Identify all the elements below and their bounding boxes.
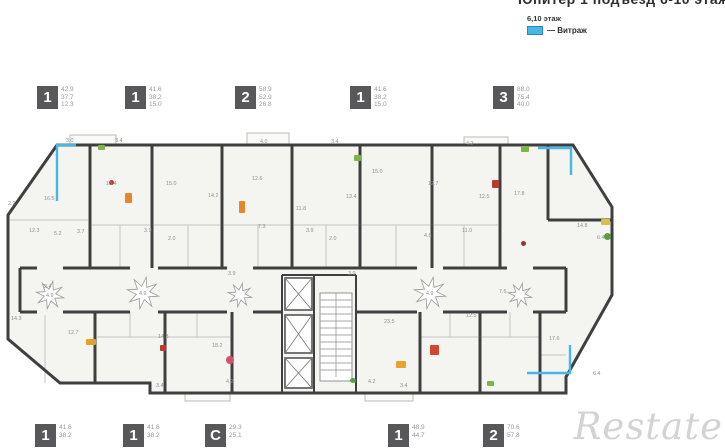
furniture-item [86, 339, 96, 345]
unit-areas: 42.9 37.7 12.3 [61, 86, 74, 109]
unit-area: 41.6 [147, 424, 160, 432]
room-area-label: 3.9 [306, 228, 314, 234]
unit-label-top-2: 1 41.6 38.2 15.0 [125, 86, 162, 109]
room-area-label: 3.0 [66, 138, 74, 144]
room-area-label: 4.9 [46, 293, 54, 299]
room-area-label: 12.7 [68, 330, 79, 336]
room-area-label: 11.0 [462, 228, 472, 234]
unit-area: 38.2 [374, 94, 387, 102]
unit-area: 41.6 [59, 424, 72, 432]
unit-area: 52.9 [259, 94, 272, 102]
furniture-item [125, 193, 132, 203]
room-area-label: 3.4 [331, 139, 339, 145]
room-area-label: 23.5 [384, 319, 395, 325]
room-area-label: 4.2 [226, 379, 234, 385]
room-area-label: 4.6 [424, 233, 432, 239]
room-area-label: 4.2 [368, 379, 376, 385]
staircase [320, 293, 352, 381]
room-area-label: 7.5 [499, 289, 507, 295]
unit-area: 15.0 [149, 101, 162, 109]
unit-areas: 41.6 38.2 [59, 424, 72, 439]
furniture-item [350, 378, 356, 383]
unit-area: 38.2 [149, 94, 162, 102]
unit-label-top-5: 3 88.0 75.4 40.0 [493, 86, 530, 109]
room-area-label: 12.6 [252, 176, 263, 182]
room-area-label: 17.6 [549, 336, 560, 342]
unit-areas: 70.6 57.8 [507, 424, 520, 439]
room-area-label: 3.9 [144, 228, 152, 234]
unit-label-top-1: 1 42.9 37.7 12.3 [37, 86, 74, 109]
unit-type-badge: 3 [493, 86, 514, 109]
room-area-label: 3.9 [228, 271, 236, 277]
room-area-label: 6.4 [597, 235, 605, 241]
room-area-label: 2.2 [8, 201, 16, 207]
page-title: Юпитер 1 подъезд 6-10 этаж [518, 0, 725, 7]
room-area-label: 16.5 [44, 196, 55, 202]
room-area-label: 6.4 [593, 371, 601, 377]
room-area-label: 15.0 [372, 169, 383, 175]
furniture-item [239, 201, 245, 213]
unit-area: 38.2 [147, 432, 160, 440]
room-area-label: 3.7 [77, 229, 85, 235]
unit-type-badge: 1 [37, 86, 58, 109]
room-area-label: 17.8 [514, 191, 525, 197]
room-area-label: 2.0 [168, 236, 176, 242]
unit-area: 38.2 [59, 432, 72, 440]
unit-type-badge: 1 [350, 86, 371, 109]
furniture-item [521, 241, 526, 246]
room-area-label: 2.4 [44, 284, 52, 290]
unit-areas: 58.9 52.9 26.8 [259, 86, 272, 109]
furniture-item [521, 146, 529, 152]
room-area-label: 14.2 [208, 193, 219, 199]
unit-area: 12.3 [61, 101, 74, 109]
unit-area: 15.0 [374, 101, 387, 109]
room-area-label: 7.3 [258, 224, 266, 230]
furniture-item [604, 233, 611, 240]
room-area-label: 14.3 [158, 334, 169, 340]
unit-type-badge: 2 [235, 86, 256, 109]
room-area-label: 14.8 [577, 223, 588, 229]
vitrage-color-swatch [527, 26, 543, 35]
unit-areas: 29.3 25.1 [229, 424, 242, 439]
room-area-label: 3.4 [156, 383, 164, 389]
room-area-label: 12.5 [479, 194, 490, 200]
unit-areas: 48.9 44.7 [412, 424, 425, 439]
room-area-label: 4.9 [139, 291, 147, 297]
unit-area: 29.3 [229, 424, 242, 432]
unit-area: 41.6 [149, 86, 162, 94]
furniture-item [601, 219, 610, 225]
unit-area: 75.4 [517, 94, 530, 102]
unit-area: 26.8 [259, 101, 272, 109]
room-area-label: 2.0 [329, 236, 337, 242]
room-area-label: 13.4 [346, 194, 357, 200]
unit-area: 25.1 [229, 432, 242, 440]
furniture-item [487, 381, 494, 386]
furniture-item [492, 180, 499, 188]
room-area-label: 14.3 [11, 316, 22, 322]
room-area-label: 11.8 [296, 206, 306, 212]
unit-area: 40.0 [517, 101, 530, 109]
watermark: Restate [574, 405, 723, 448]
unit-area: 88.0 [517, 86, 530, 94]
unit-type-badge: 1 [125, 86, 146, 109]
floor-plan: 3.03.44.03.44.216.513.415.014.212.67.311… [0, 125, 620, 405]
unit-areas: 41.6 38.2 15.0 [374, 86, 387, 109]
legend-floors-label: 6,10 этаж [527, 14, 587, 23]
unit-area: 42.9 [61, 86, 74, 94]
furniture-item [396, 361, 406, 368]
unit-areas: 41.6 38.2 15.0 [149, 86, 162, 109]
furniture-item [98, 145, 105, 150]
unit-area: 57.8 [507, 432, 520, 440]
room-area-label: 3.9 [348, 271, 356, 277]
unit-area: 44.7 [412, 432, 425, 440]
room-area-label: 4.0 [260, 139, 268, 145]
unit-areas: 41.6 38.2 [147, 424, 160, 439]
room-area-label: 3.4 [115, 138, 123, 144]
unit-label-top-4: 1 41.6 38.2 15.0 [350, 86, 387, 109]
unit-label-top-3: 2 58.9 52.9 26.8 [235, 86, 272, 109]
room-area-label: 4.2 [466, 141, 474, 147]
unit-area: 41.6 [374, 86, 387, 94]
room-area-label: 15.0 [166, 181, 177, 187]
unit-area: 58.9 [259, 86, 272, 94]
unit-areas: 88.0 75.4 40.0 [517, 86, 530, 109]
room-area-label: 12.5 [466, 313, 477, 319]
unit-area: 48.9 [412, 424, 425, 432]
room-area-label: 13.4 [106, 181, 117, 187]
room-area-label: 18.2 [212, 343, 223, 349]
furniture-item [226, 356, 234, 364]
legend: 6,10 этаж — Витраж [527, 14, 587, 35]
legend-vitrage-label: — Витраж [547, 26, 587, 35]
unit-area: 70.6 [507, 424, 520, 432]
furniture-item [160, 345, 166, 351]
room-area-label: 4.9 [426, 291, 434, 297]
room-area-label: 3.4 [400, 383, 408, 389]
room-area-label: 5.2 [54, 231, 62, 237]
furniture-item [430, 345, 439, 355]
room-area-label: 12.7 [428, 181, 439, 187]
furniture-item [354, 155, 361, 161]
legend-row: — Витраж [527, 26, 587, 35]
room-area-label: 12.3 [29, 228, 40, 234]
unit-area: 37.7 [61, 94, 74, 102]
